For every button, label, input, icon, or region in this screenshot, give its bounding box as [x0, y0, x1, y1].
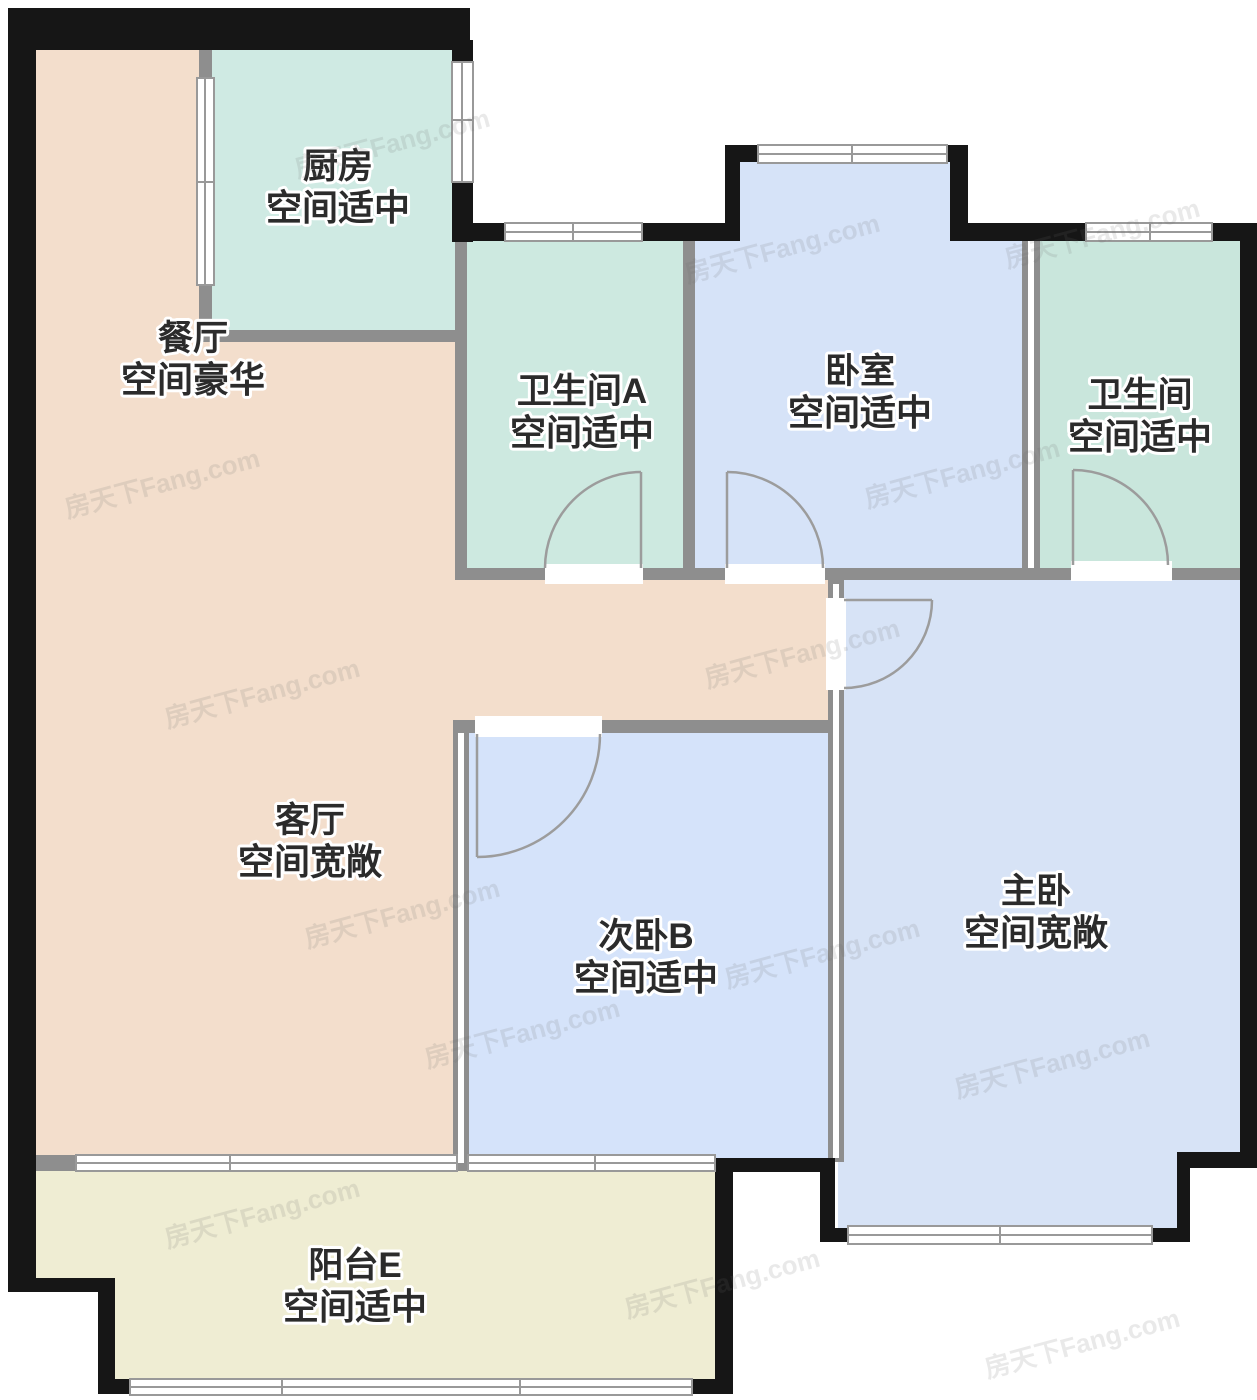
- label-bathroom-a-quality: 空间适中: [510, 412, 654, 453]
- floorplan-svg: 厨房 空间适中 餐厅 空间豪华 卫生间A 空间适中 卧室 空间适中 卫生间 空间…: [0, 0, 1257, 1400]
- window-secondary-balcony: [468, 1155, 715, 1171]
- label-bedroom-name: 卧室: [825, 351, 895, 391]
- window-bedroom-top: [758, 145, 947, 163]
- label-living-quality: 空间宽敞: [238, 841, 383, 882]
- window-bathroom-a-top: [505, 223, 642, 241]
- window-master-bottom: [848, 1226, 1152, 1244]
- label-dining-quality: 空间豪华: [121, 359, 265, 400]
- floor-plan: 厨房 空间适中 餐厅 空间豪华 卫生间A 空间适中 卧室 空间适中 卫生间 空间…: [0, 0, 1257, 1400]
- label-bedroom-quality: 空间适中: [788, 392, 932, 433]
- window-kitchen-side: [452, 62, 473, 182]
- label-bathroom-name: 卫生间: [1087, 376, 1192, 415]
- room-fills: [36, 50, 1242, 1384]
- window-kitchen-dining-pass: [197, 78, 214, 285]
- window-bathroom-top: [1086, 223, 1212, 241]
- label-balcony-name: 阳台E: [308, 1246, 401, 1285]
- label-kitchen-name: 厨房: [303, 147, 373, 186]
- window-balcony-bottom: [130, 1379, 692, 1395]
- window-living-balcony: [76, 1155, 457, 1171]
- label-master-bedroom-quality: 空间宽敞: [964, 912, 1109, 953]
- label-bathroom-a-name: 卫生间A: [517, 372, 647, 411]
- label-balcony-quality: 空间适中: [283, 1286, 427, 1327]
- label-living-name: 客厅: [275, 800, 345, 840]
- label-dining-name: 餐厅: [158, 319, 228, 358]
- label-secondary-bedroom-name: 次卧B: [598, 917, 693, 956]
- label-bathroom-quality: 空间适中: [1068, 416, 1212, 457]
- label-kitchen-quality: 空间适中: [266, 187, 410, 228]
- label-secondary-bedroom-quality: 空间适中: [574, 957, 718, 998]
- label-master-bedroom-name: 主卧: [1001, 872, 1071, 911]
